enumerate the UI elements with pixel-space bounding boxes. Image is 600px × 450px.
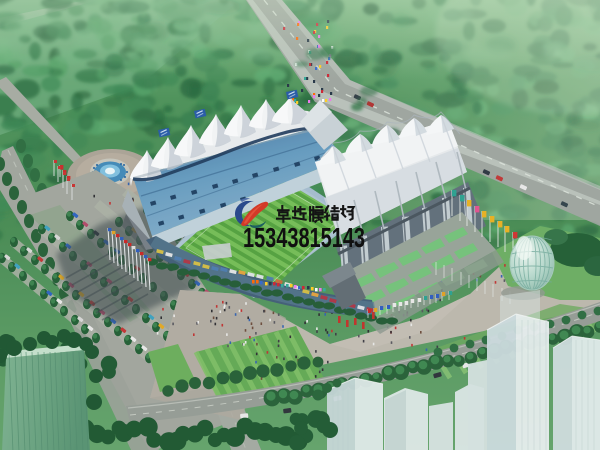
svg-text:15343815143: 15343815143 (243, 222, 365, 253)
